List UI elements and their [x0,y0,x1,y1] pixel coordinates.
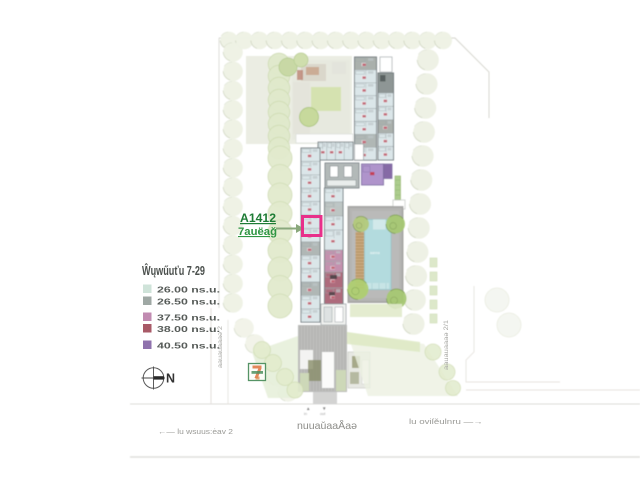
svg-text:37.50 ns.u.: 37.50 ns.u. [157,314,220,323]
svg-text:Ŵųwűuťu 7-29: Ŵųwűuťu 7-29 [142,263,205,278]
svg-text:N: N [166,372,175,386]
svg-text:A1412: A1412 [240,211,276,225]
svg-text:26.00 ns.u.: 26.00 ns.u. [157,286,220,295]
svg-text:7auëağ: 7auëağ [238,226,277,238]
svg-text:←— lu wsuus:ėav 2: ←— lu wsuus:ėav 2 [158,429,233,436]
svg-text:aauauaaaə 2: aauauaaaə 2 [217,325,224,368]
svg-text:26.50 ns.u.: 26.50 ns.u. [157,298,220,307]
svg-text:lu oviſěulnru —→: lu oviſěulnru —→ [409,419,483,426]
svg-text:aauauaaaə 2/1: aauauaaaə 2/1 [443,319,450,370]
svg-text:38.00 ns.u.: 38.00 ns.u. [157,325,220,334]
svg-text:nuuaǔaaǞaə: nuuaǔaaǞaə [297,419,357,432]
svg-text:40.50 ns.u.: 40.50 ns.u. [157,342,220,351]
